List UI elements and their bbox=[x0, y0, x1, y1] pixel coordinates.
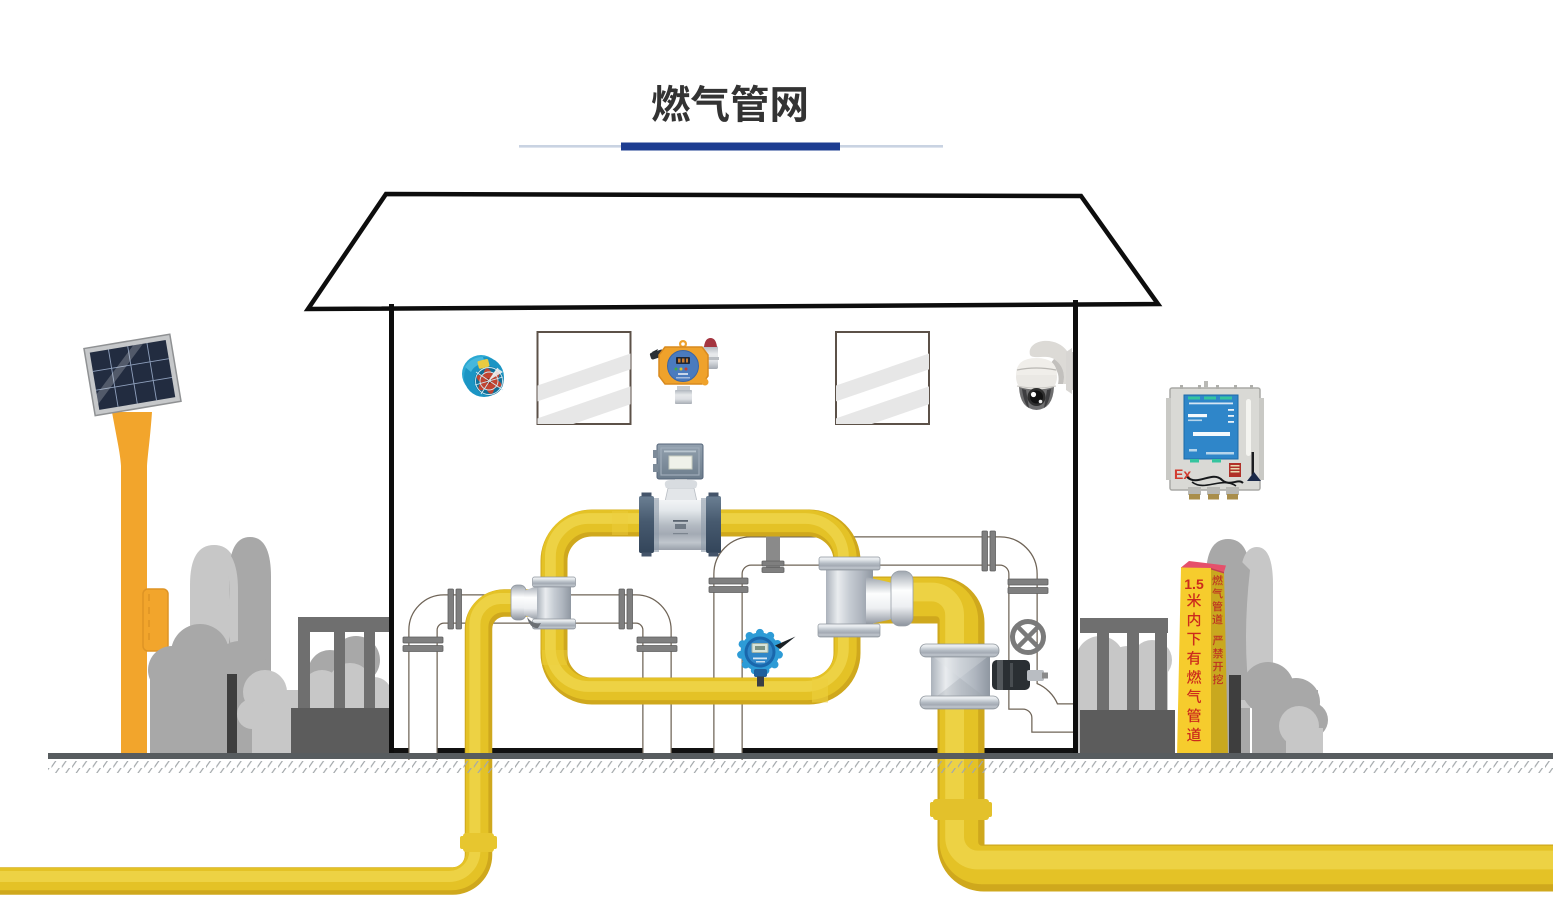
svg-text:1.5: 1.5 bbox=[1184, 576, 1204, 592]
svg-text:Ex: Ex bbox=[1174, 466, 1191, 482]
